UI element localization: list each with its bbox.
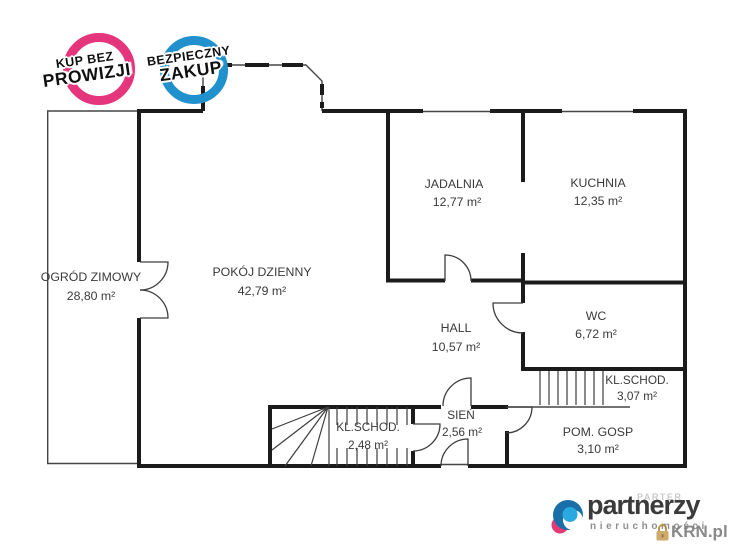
stairs-lower-treads [329, 407, 407, 466]
room-area-winter-garden: 28,80 m² [67, 289, 116, 303]
agency-logo-name: partnerzy [587, 490, 700, 521]
room-name-living-room: POKÓJ DZIENNY [212, 264, 311, 279]
room-area-hall: 10,57 m² [432, 340, 481, 354]
logo-lightblue-drop [563, 507, 578, 522]
agency-logo-icon [548, 498, 586, 536]
room-name-dining: JADALNIA [425, 177, 485, 191]
door-entrance [441, 439, 468, 466]
room-area-dining: 12,77 m² [433, 195, 482, 209]
room-area-wc: 6,72 m² [575, 327, 617, 341]
site-watermark: KRN.pl [655, 522, 728, 542]
room-name-kitchen: KUCHNIA [570, 176, 626, 190]
room-name-utility: POM. GOSP [563, 425, 633, 439]
room-area-vestibule: 2,56 m² [442, 425, 482, 439]
room-name-vestibule: SIEŃ [447, 408, 475, 422]
stairs [272, 371, 603, 466]
room-name-wc: WC [586, 309, 607, 323]
site-watermark-text: KRN.pl [671, 522, 728, 542]
padlock-icon [655, 523, 670, 542]
winter-garden-outline [48, 111, 139, 464]
door-wc [493, 303, 523, 333]
inner-walls [268, 111, 687, 468]
floorplan-image: OGRÓD ZIMOWY 28,80 m² POKÓJ DZIENNY 42,7… [0, 0, 740, 556]
room-area-living-room: 42,79 m² [238, 284, 287, 298]
door-utility [506, 407, 532, 433]
door-staircase [413, 424, 440, 451]
stairs-winder-fan [272, 407, 328, 466]
room-name-stairs-lower: KL.SCHOD. [336, 420, 400, 434]
room-name-stairs-upper: KL.SCHOD. [605, 373, 669, 387]
door-hall-vestibule [443, 378, 471, 406]
room-area-kitchen: 12,35 m² [574, 194, 623, 208]
room-name-hall: HALL [441, 321, 472, 335]
door-french-top [140, 262, 168, 290]
room-labels: OGRÓD ZIMOWY 28,80 m² POKÓJ DZIENNY 42,7… [41, 176, 669, 456]
room-name-winter-garden: OGRÓD ZIMOWY [41, 269, 141, 284]
room-area-stairs-upper: 3,07 m² [617, 389, 657, 403]
walls-thin [48, 65, 633, 465]
room-area-stairs-lower: 2,48 m² [348, 438, 388, 452]
room-area-utility: 3,10 m² [577, 442, 619, 456]
stairs-upper-treads [540, 371, 603, 405]
door-dining [445, 255, 471, 281]
door-french-bottom [140, 290, 168, 318]
